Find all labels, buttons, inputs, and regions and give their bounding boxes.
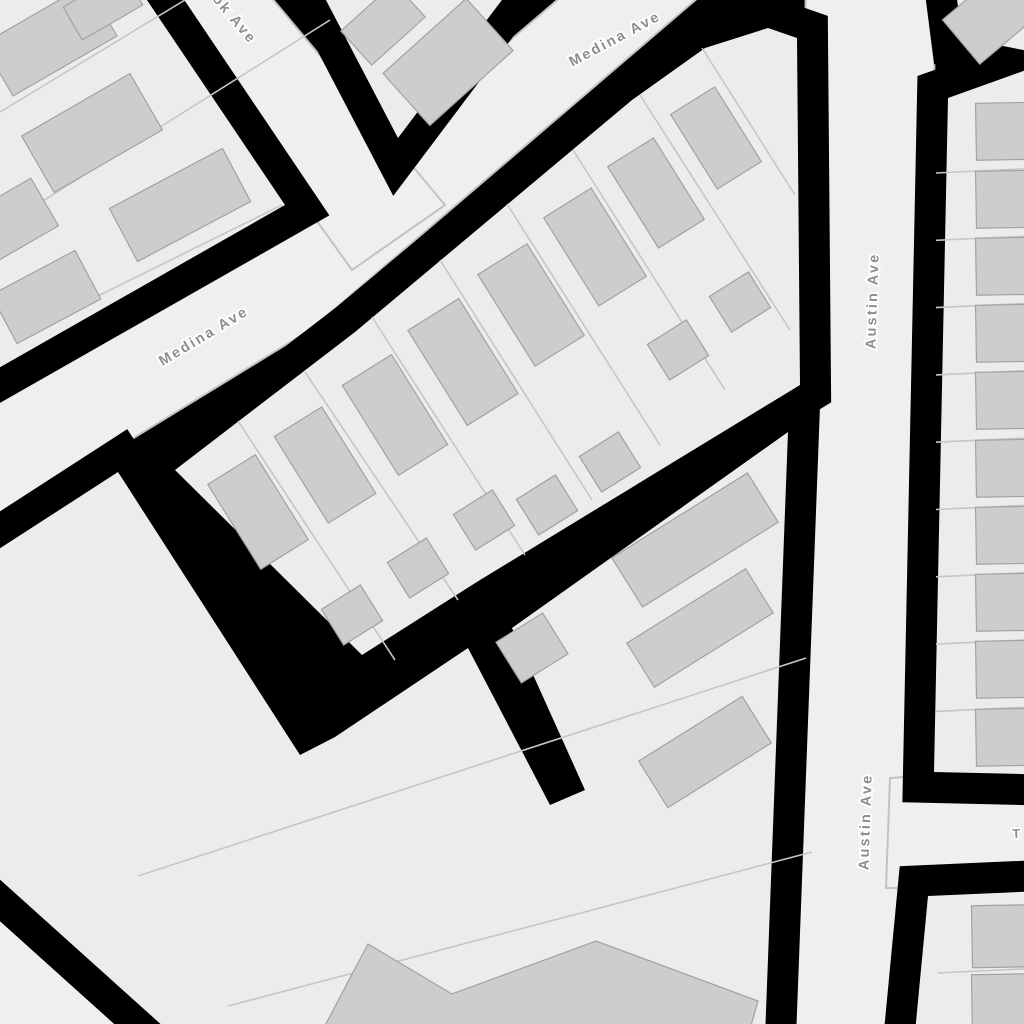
building [976,439,1024,498]
building [976,506,1024,565]
map-viewport[interactable]: ok Ave Medina Ave Medina Ave Austin Ave … [0,0,1024,1024]
map-canvas: ok Ave Medina Ave Medina Ave Austin Ave … [0,0,1024,1024]
street-label-austin-ave-upper: Austin Ave [863,252,882,349]
building [976,170,1024,229]
building [976,371,1024,430]
building [971,973,1024,1024]
street-label-austin-ave-lower: Austin Ave [856,773,875,870]
street-label-t-partial: T [1012,826,1022,841]
building [976,304,1024,363]
building [976,640,1024,699]
building [976,708,1024,767]
building [976,237,1024,296]
building [976,573,1024,632]
building [971,904,1024,968]
building [976,102,1024,161]
